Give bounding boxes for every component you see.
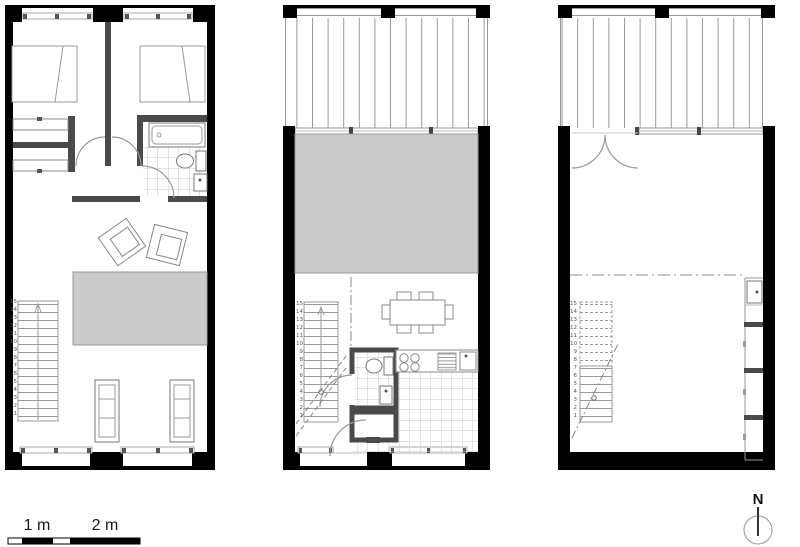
bed xyxy=(140,46,205,102)
bathtub xyxy=(149,123,205,147)
closet xyxy=(352,412,396,443)
bed xyxy=(12,46,77,102)
kitchen-sink xyxy=(460,352,476,370)
stairs xyxy=(572,302,618,438)
north-arrow-icon xyxy=(744,507,772,544)
dining-table xyxy=(382,292,453,333)
toilet xyxy=(366,359,382,373)
kitchen-tile-floor xyxy=(396,372,478,443)
stove-burner xyxy=(400,363,408,371)
window-wall xyxy=(572,127,763,135)
stove-burner xyxy=(411,354,419,362)
stair-step-numbers: 151413121110987654321 xyxy=(566,300,577,420)
sink xyxy=(194,174,207,191)
scale-bar xyxy=(8,538,140,544)
floor-plan-3 xyxy=(558,5,775,470)
kitchen-tile-floor xyxy=(352,443,478,452)
balcony-decking xyxy=(558,5,775,128)
stairs xyxy=(18,301,58,421)
armchair xyxy=(98,218,145,265)
sofa-unit xyxy=(170,380,194,442)
sink xyxy=(380,386,392,404)
stairs xyxy=(296,302,346,436)
floor-plan-2 xyxy=(283,5,490,470)
stove-burner xyxy=(411,363,419,371)
living-area-fill xyxy=(295,134,478,273)
kitchen-counter xyxy=(396,350,478,372)
appliance xyxy=(747,281,762,303)
balcony-decking xyxy=(283,5,490,128)
sofa-unit xyxy=(95,380,119,442)
void-area xyxy=(73,272,207,345)
drainer xyxy=(438,353,456,370)
floor-plan-1 xyxy=(5,5,215,470)
scale-label-1m: 1 m xyxy=(19,517,55,535)
floor-plans-drawing xyxy=(0,0,800,547)
stair-step-numbers: 151413121110987654321 xyxy=(292,300,303,420)
armchair xyxy=(146,224,187,265)
toilet xyxy=(384,357,393,375)
scale-label-2m: 2 m xyxy=(87,517,123,535)
cupboards xyxy=(743,278,763,460)
north-label: N xyxy=(749,491,767,508)
stove-burner xyxy=(400,354,408,362)
stair-step-numbers: 151413121110987654321 xyxy=(6,298,17,418)
double-door-swing xyxy=(572,135,638,168)
floor-plan-sheet: 1 m 2 m N 151413121110987654321 15141312… xyxy=(0,0,800,547)
